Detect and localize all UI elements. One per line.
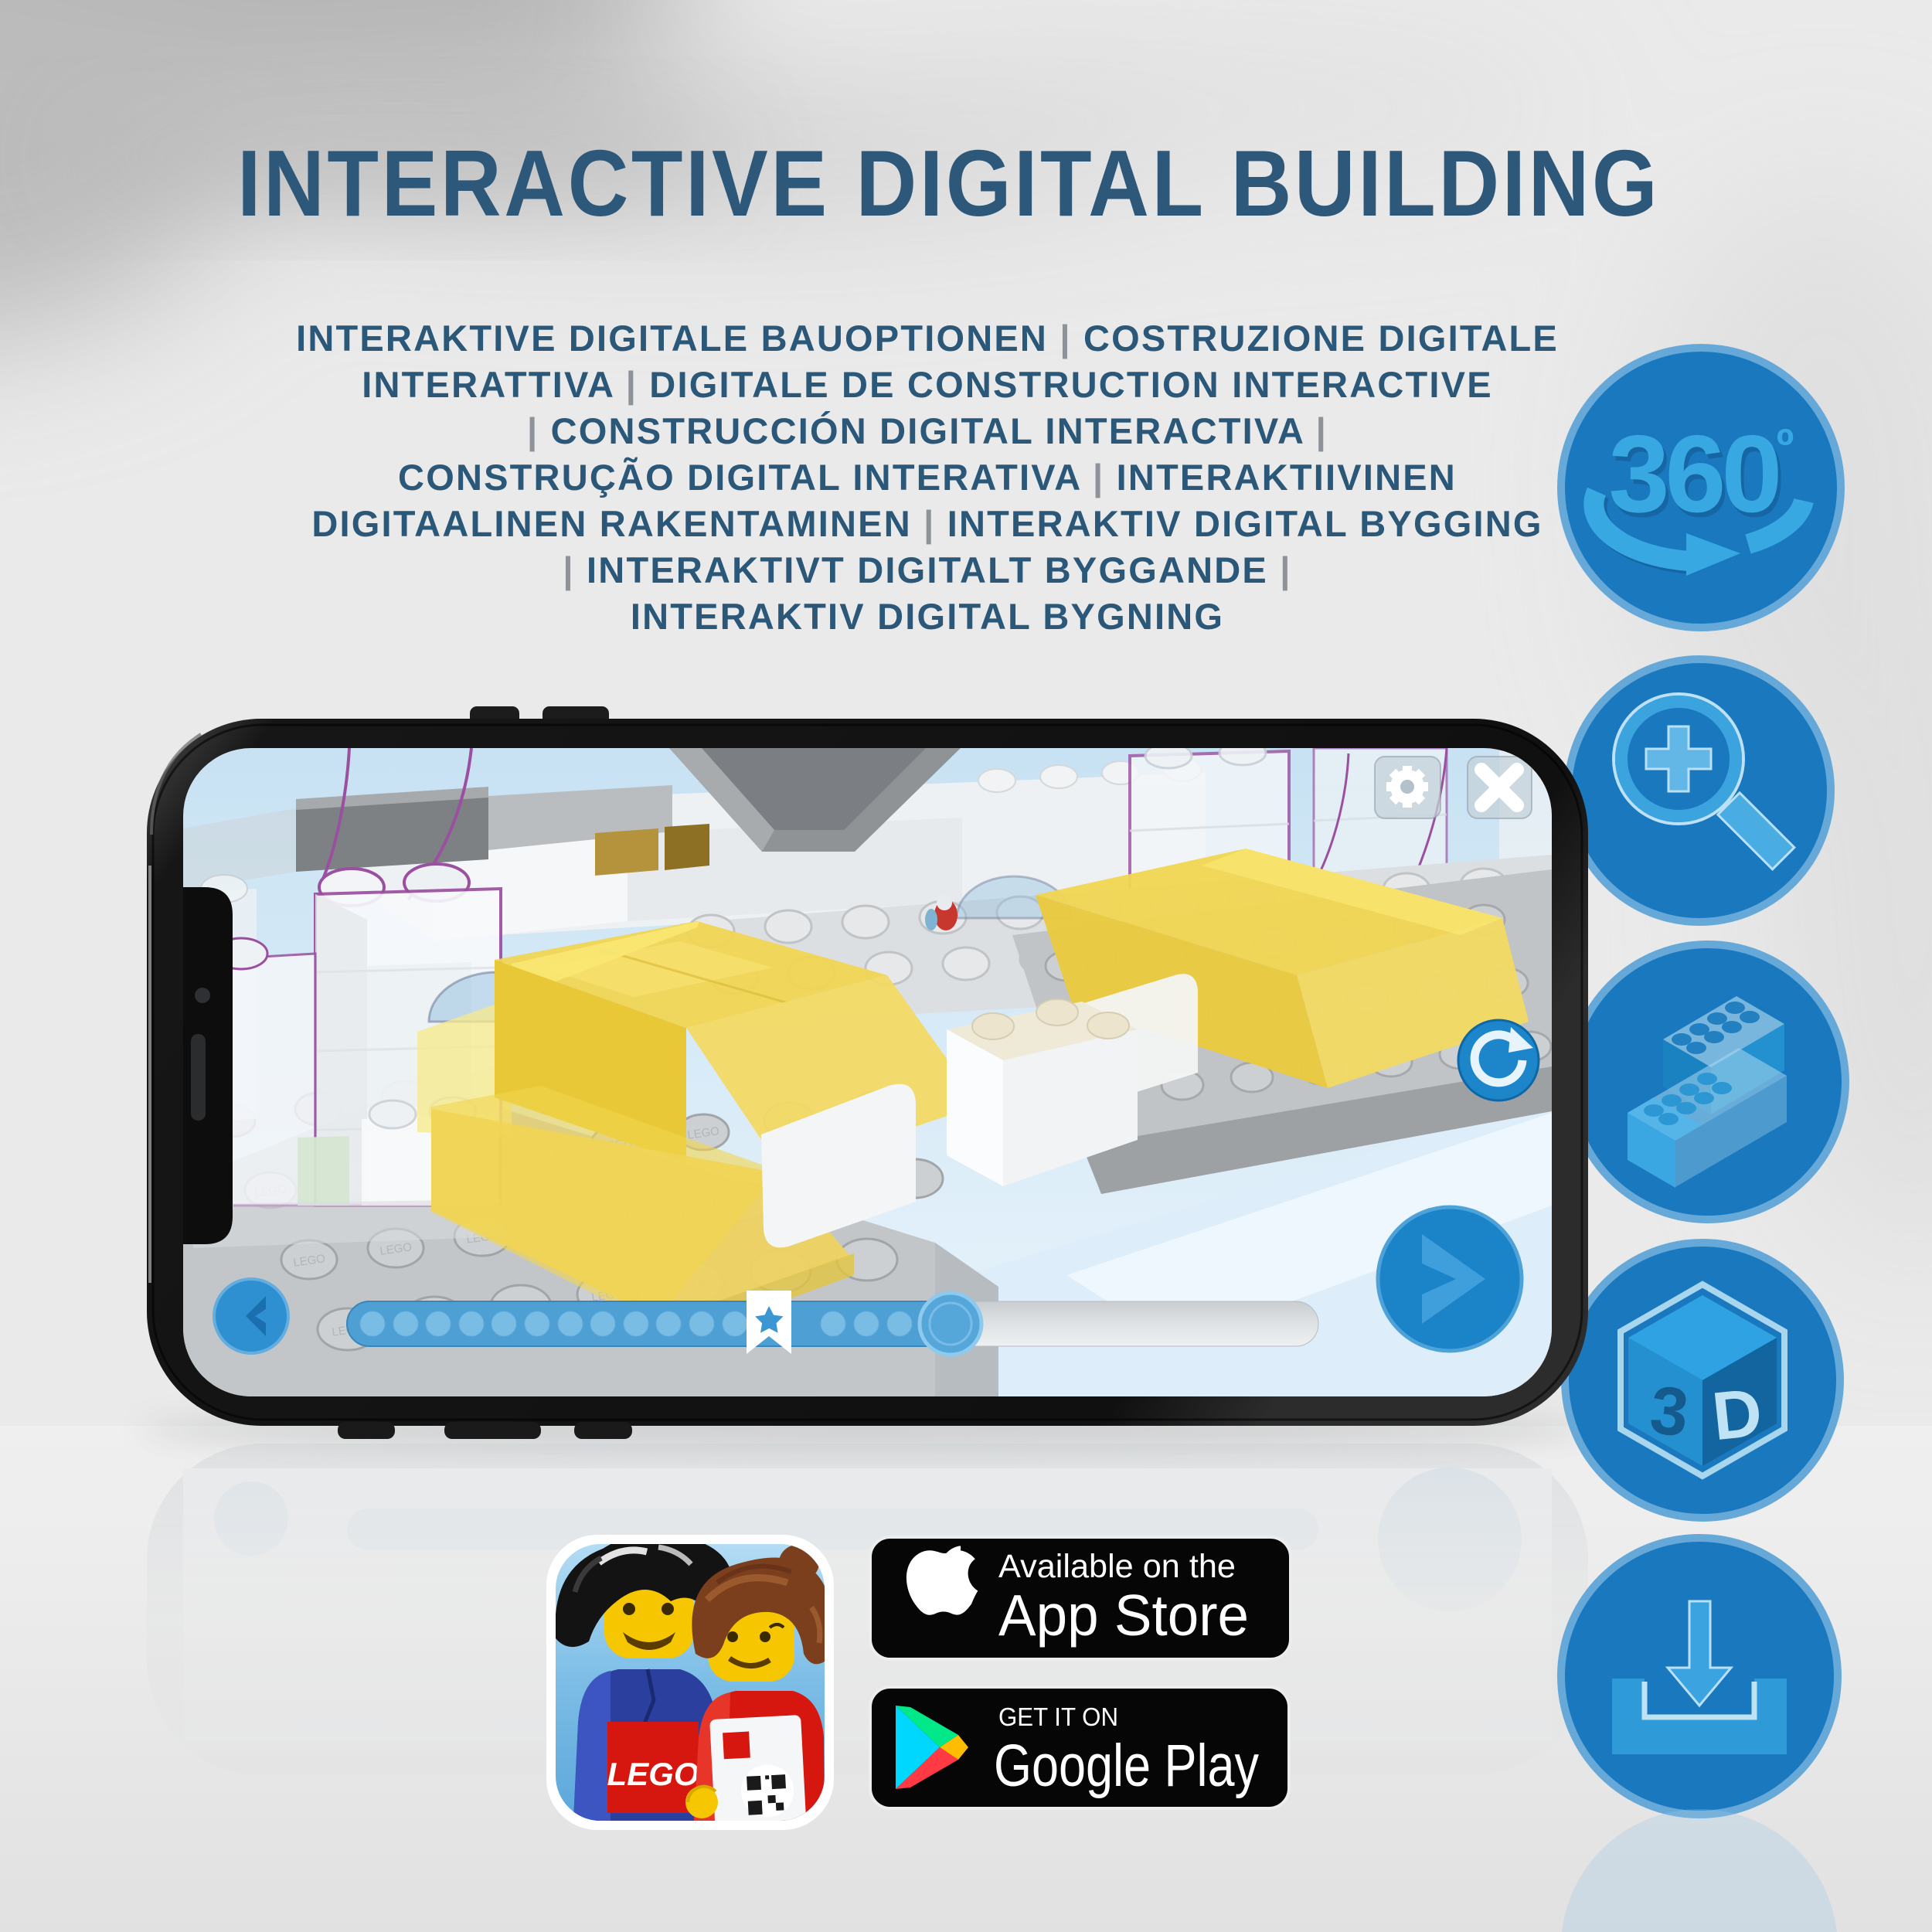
svg-text:Available on the: Available on the [998, 1548, 1236, 1585]
svg-text:App Store: App Store [998, 1583, 1249, 1648]
svg-text:LEGO: LEGO [607, 1756, 699, 1792]
svg-text:Google Play: Google Play [994, 1733, 1259, 1799]
svg-text:GET IT ON: GET IT ON [998, 1702, 1118, 1731]
